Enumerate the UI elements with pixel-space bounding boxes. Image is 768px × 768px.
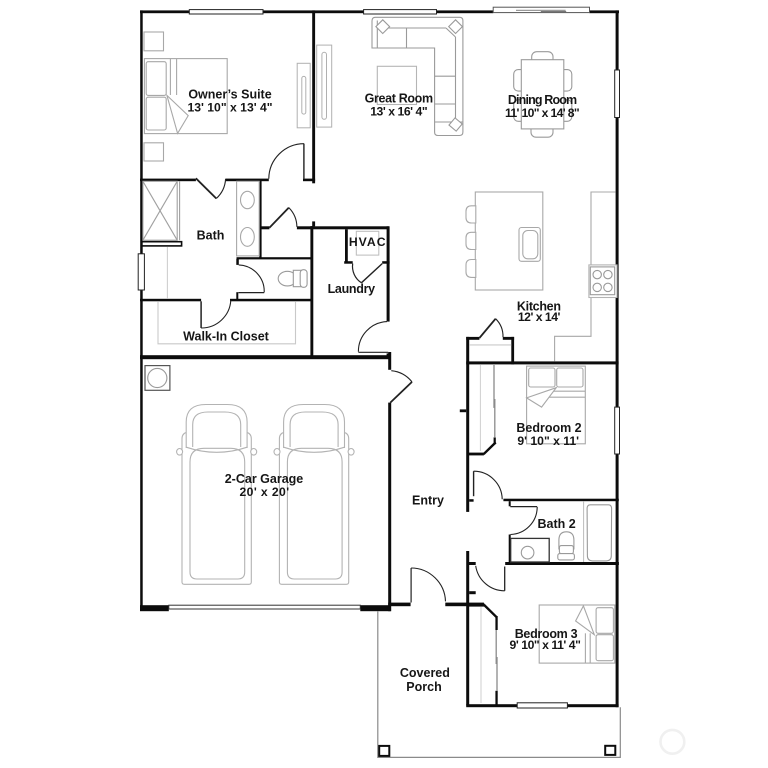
svg-text:Owner’s Suite: Owner’s Suite <box>188 88 271 102</box>
svg-text:HVAC: HVAC <box>349 235 387 249</box>
svg-text:Bath: Bath <box>197 228 225 242</box>
svg-text:13' x 16' 4": 13' x 16' 4" <box>370 105 427 119</box>
svg-text:13' 10" x 13' 4": 13' 10" x 13' 4" <box>187 100 272 114</box>
svg-text:Covered: Covered <box>400 666 450 680</box>
svg-text:Bedroom 2: Bedroom 2 <box>516 421 581 435</box>
svg-text:9' 10" x 11' 4": 9' 10" x 11' 4" <box>510 638 581 652</box>
svg-text:11' 10" x 14' 8": 11' 10" x 14' 8" <box>505 106 579 120</box>
svg-text:Entry: Entry <box>412 494 444 508</box>
svg-text:Walk-In Closet: Walk-In Closet <box>183 330 269 344</box>
svg-text:Laundry: Laundry <box>328 282 376 296</box>
svg-text:Great Room: Great Room <box>365 91 433 105</box>
svg-text:Porch: Porch <box>406 680 441 694</box>
svg-text:2-Car Garage: 2-Car Garage <box>225 472 304 486</box>
svg-text:20' x 20': 20' x 20' <box>239 485 289 499</box>
svg-text:12' x 14': 12' x 14' <box>518 310 561 324</box>
svg-text:9' 10" x 11': 9' 10" x 11' <box>517 434 579 448</box>
svg-text:Bath 2: Bath 2 <box>537 517 575 531</box>
